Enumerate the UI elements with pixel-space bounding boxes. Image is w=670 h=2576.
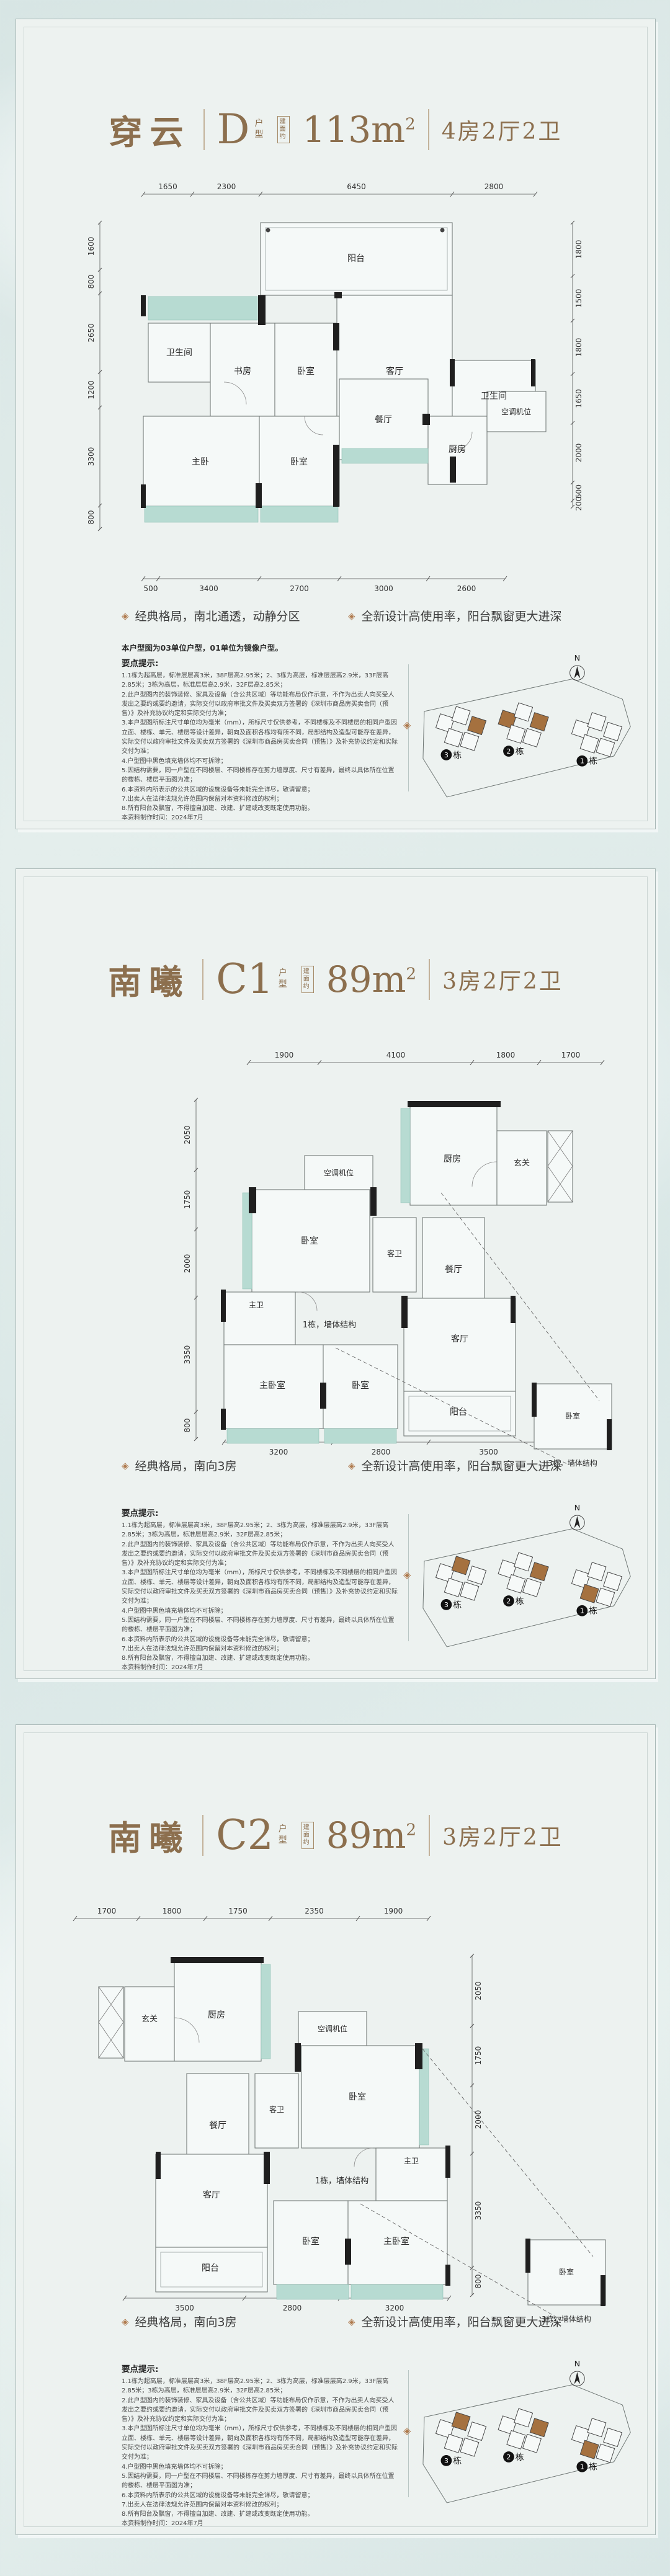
wall	[607, 1419, 612, 1450]
rooms-spec: 3房2厅2卫	[442, 963, 563, 996]
disclaimer-line: 7.出卖人在法律法规允许范围内保留对本资料修改的权利；	[122, 795, 400, 804]
disclaimer-line: 1.1栋为超高层，标准层层高3米，38F层高2.95米；2、3栋为高层，标准层层…	[122, 2377, 400, 2396]
unit-title: 穿云 D 户型 建面约 113m2 4房2厅2卫	[16, 105, 655, 154]
wall	[511, 1296, 516, 1323]
wall	[256, 483, 262, 508]
room-label: 卧室	[352, 1380, 369, 1391]
room-label: 卫生间	[166, 348, 192, 358]
building-unit	[523, 1578, 542, 1597]
room-label: 卧室	[297, 366, 315, 377]
feature-bullet: ◈经典格局，南北通透，动静分区	[122, 607, 300, 624]
wall	[422, 414, 430, 425]
compass-needle	[574, 666, 580, 679]
dim-label: 6450	[347, 182, 366, 191]
wall	[258, 295, 266, 325]
dim-label: 3200	[385, 2304, 404, 2312]
dim-label: 3000	[374, 584, 393, 593]
corner-dot	[440, 228, 445, 233]
door-arc	[298, 1292, 317, 1311]
feature-bullet: ◈经典格局，南向3房	[122, 1457, 237, 1474]
dim-label: 800	[87, 275, 96, 289]
dim-label: 800	[474, 2275, 483, 2289]
bay-window	[227, 1428, 319, 1443]
room-label: 客厅	[203, 2190, 220, 2200]
disclaimer-line: 5.因结构需要，同一户型在不同楼层、不同楼栋存在剪力墙厚度、尺寸有差异，最终以具…	[122, 2472, 400, 2491]
dim-label: 800	[87, 510, 96, 525]
wall	[450, 457, 456, 483]
tips-heading: 要点提示:	[122, 656, 158, 669]
feature-bullet: ◈经典格局，南向3房	[122, 2313, 237, 2330]
building-unit-highlighted	[530, 713, 548, 731]
room-label: 餐厅	[375, 415, 392, 425]
compass-needle	[574, 1516, 580, 1528]
floorplan-panel-nanxi-c1: 南曦 C1 户型 建面约 89m2 3房2厅2卫 190041001800170…	[16, 868, 656, 1679]
room-outline	[156, 2154, 267, 2247]
diamond-icon: ◈	[403, 719, 411, 731]
room-outline	[224, 1292, 295, 1345]
dim-label: 1700	[97, 1907, 117, 1915]
room-label: 玄关	[141, 2015, 158, 2024]
diamond-icon: ◈	[122, 1460, 129, 1471]
dim-label: 3500	[175, 2304, 194, 2312]
feature-text: 全新设计高使用率，阳台飘窗更大进深	[362, 607, 562, 624]
room-label: 1栋，墙体结构	[303, 1320, 356, 1330]
unit-type-code: C2	[216, 1815, 274, 1856]
wall	[333, 323, 339, 350]
disclaimer-line: 8.所有阳台及飘窗，不得擅自加建、改建、扩建或改变既定使用功能。	[122, 1654, 400, 1663]
disclaimer-line: 3.本户型图所标注尺寸单位均为毫米（mm），所标尺寸仅供参考，不同楼栋及不同楼层…	[122, 2424, 400, 2462]
title-divider	[202, 1815, 203, 1856]
feature-bullet: ◈全新设计高使用率，阳台飘窗更大进深	[348, 607, 562, 624]
room-label: 主卧室	[383, 2236, 409, 2247]
diamond-icon: ◈	[348, 1460, 355, 1471]
building-unit-highlighted	[452, 2412, 470, 2431]
bay-window	[261, 506, 338, 522]
dim-label: 1650	[574, 389, 583, 408]
unit-type: C1 户型	[216, 959, 289, 1000]
building-unit	[596, 1588, 615, 1607]
title-divider	[429, 1815, 430, 1856]
wall	[264, 2152, 270, 2184]
feature-bullet: ◈全新设计高使用率，阳台飘窗更大进深	[348, 2313, 562, 2330]
area-value: 113m2	[302, 112, 415, 148]
wall	[525, 2239, 530, 2273]
room-label: 主卫	[404, 2157, 419, 2165]
dim-label: 600	[574, 484, 583, 499]
dim-label: 2000	[574, 443, 583, 463]
disclaimer-block: 1.1栋为超高层，标准层层高3米，38F层高2.95米；2、3栋为高层，标准层层…	[122, 671, 400, 823]
building-number: 2	[507, 2453, 511, 2461]
area-badge: 建面约	[301, 966, 314, 993]
dim-label: 1500	[574, 289, 583, 308]
wall	[415, 2043, 422, 2069]
wall	[333, 445, 339, 507]
wall	[450, 359, 455, 386]
building-unit	[596, 2444, 615, 2462]
floorplan-panel-chuanyun-d: 穿云 D 户型 建面约 113m2 4房2厅2卫 165023006450280…	[16, 19, 656, 829]
dim-label: 1800	[574, 338, 583, 357]
dim-label: 1750	[474, 2046, 483, 2066]
dim-label: 2650	[87, 323, 96, 342]
room-label: 主卧	[192, 457, 209, 467]
project-name: 南曦	[108, 955, 190, 1004]
site-plan: 3栋2栋1栋N	[419, 2356, 640, 2515]
disclaimer-line: 4.户型图中黑色填充墙体均不可拆除；	[122, 1607, 400, 1616]
diamond-icon: ◈	[348, 2316, 355, 2327]
dim-label: 3350	[183, 1345, 192, 1365]
building-unit	[587, 1562, 606, 1581]
area-badge: 建面约	[277, 116, 290, 143]
diamond-icon: ◈	[122, 610, 129, 622]
building-unit	[468, 2422, 486, 2441]
disclaimer-line: 3.本户型图所标注尺寸单位均为毫米（mm），所标尺寸仅供参考，不同楼栋及不同楼层…	[122, 1568, 400, 1606]
building-unit	[514, 703, 533, 721]
title-divider	[429, 959, 430, 1000]
building-unit	[523, 2434, 542, 2453]
wall	[295, 2043, 301, 2072]
building-unit	[604, 2428, 622, 2447]
room-label: 卧室	[349, 2092, 366, 2102]
wall	[320, 1383, 326, 1409]
room-label: 阳台	[450, 1407, 467, 1417]
disclaimer-line: 4.户型图中黑色填充墙体均不可拆除；	[122, 757, 400, 766]
wall	[221, 1409, 226, 1430]
building-unit	[604, 723, 622, 741]
building-label: 栋	[516, 1596, 524, 1607]
disclaimer-block: 1.1栋为超高层，标准层层高3米，38F层高2.95米；2、3栋为高层，标准层层…	[122, 2377, 400, 2529]
dim-label: 2000	[183, 1254, 192, 1273]
disclaimer-line: 5.因结构需要，同一户型在不同楼层、不同楼栋存在剪力墙厚度、尺寸有差异，最终以具…	[122, 766, 400, 785]
building-number: 1	[580, 1607, 584, 1615]
building-label: 栋	[516, 2452, 524, 2462]
rooms-spec: 4房2厅2卫	[442, 114, 563, 146]
made-date: 本资料制作时间：2024年7月	[122, 1663, 400, 1672]
building-label: 栋	[516, 746, 524, 757]
wall	[531, 359, 535, 386]
bay-window	[148, 296, 257, 320]
wall	[141, 484, 146, 508]
room-label: 客厅	[386, 366, 403, 377]
dim-label: 1800	[574, 240, 583, 259]
disclaimer-line: 1.1栋为超高层，标准层层高3米，38F层高2.95米；2、3栋为高层，标准层层…	[122, 1521, 400, 1540]
room-label: 客卫	[269, 2105, 284, 2114]
room-outline	[404, 1298, 516, 1391]
room-label: 书房	[234, 367, 251, 377]
diamond-icon: ◈	[348, 610, 355, 622]
made-date: 本资料制作时间：2024年7月	[122, 2519, 400, 2528]
room-label: 卧室	[559, 2267, 574, 2276]
area-number: 113m	[302, 109, 405, 151]
feature-text: 全新设计高使用率，阳台飘窗更大进深	[362, 2313, 562, 2330]
bay-window	[261, 1964, 270, 2059]
dim-label: 1750	[228, 1907, 248, 1915]
room-label: 卧室	[302, 2236, 319, 2247]
dim-label: 1700	[561, 1051, 581, 1059]
area-superscript: 2	[406, 1821, 417, 1839]
building-unit-highlighted	[530, 2418, 548, 2437]
wall	[334, 292, 342, 298]
building-number: 2	[507, 1597, 511, 1605]
project-name: 穿云	[109, 105, 191, 154]
disclaimer-line: 6.本资料内所表示的公共区域的设施设备等未能完全详尽，敬请留意；	[122, 2491, 400, 2500]
dim-label: 4100	[386, 1051, 406, 1059]
dim-label: 1800	[496, 1051, 516, 1059]
building-label: 栋	[589, 756, 597, 767]
floor-plan-svg: 1650230064502800500340027003000260016008…	[38, 174, 633, 608]
rooms-spec: 3房2厅2卫	[442, 1819, 563, 1852]
wall	[445, 2265, 450, 2286]
dim-label: 500	[144, 584, 158, 593]
mirror-note: 本户型图为03单位户型，01单位为镜像户型。	[122, 641, 283, 653]
north-label: N	[574, 654, 581, 663]
dim-label: 1600	[87, 237, 96, 256]
building-label: 栋	[453, 2456, 462, 2466]
wall	[532, 1383, 537, 1417]
tips-heading: 要点提示:	[122, 2362, 158, 2374]
room-label: 空调机位	[501, 407, 531, 416]
wall	[408, 1101, 501, 1107]
made-date: 本资料制作时间：2024年7月	[122, 813, 400, 822]
disclaimer-line: 6.本资料内所表示的公共区域的设施设备等未能完全详尽，敬请留意；	[122, 1635, 400, 1644]
feature-bullet: ◈全新设计高使用率，阳台飘窗更大进深	[348, 1457, 562, 1474]
unit-title: 南曦 C2 户型 建面约 89m2 3房2厅2卫	[16, 1811, 655, 1860]
unit-type-suffix: 户型	[279, 968, 289, 990]
room-outline	[99, 1987, 123, 2058]
dim-label: 1900	[275, 1051, 294, 1059]
room-outline	[548, 1131, 573, 1202]
unit-title: 南曦 C1 户型 建面约 89m2 3房2厅2卫	[16, 955, 655, 1004]
corner-dot	[266, 228, 270, 233]
wall	[401, 1296, 408, 1328]
site-plan: 3栋2栋1栋N	[419, 651, 640, 809]
building-unit-highlighted	[530, 1562, 548, 1581]
room-outline	[497, 1131, 547, 1205]
site-plan: 3栋2栋1栋N	[419, 1500, 640, 1659]
area-superscript: 2	[406, 965, 417, 983]
room-label: 卧室	[301, 1236, 318, 1246]
diamond-icon: ◈	[122, 2316, 129, 2327]
building-unit	[460, 732, 479, 751]
wall	[249, 1187, 256, 1213]
bay-window	[351, 2284, 443, 2299]
room-label: 空调机位	[318, 2024, 347, 2033]
room-label: 卧室	[565, 1411, 580, 1420]
dim-label: 3200	[269, 1448, 288, 1456]
dim-label: 2350	[305, 1907, 324, 1915]
dim-label: 1900	[384, 1907, 403, 1915]
disclaimer-line: 6.本资料内所表示的公共区域的设施设备等未能完全详尽，敬请留意；	[122, 785, 400, 795]
building-number: 3	[444, 751, 449, 759]
building-number: 1	[580, 757, 584, 765]
disclaimer-line: 3.本户型图所标注尺寸单位均为毫米（mm），所标尺寸仅供参考，不同楼栋及不同楼层…	[122, 718, 400, 756]
unit-type-suffix: 户型	[254, 118, 265, 140]
wall	[141, 295, 146, 316]
room-label: 玄关	[514, 1159, 530, 1168]
diamond-icon: ◈	[403, 2425, 411, 2436]
building-number: 3	[444, 1601, 449, 1609]
building-unit-highlighted	[452, 1556, 470, 1575]
unit-type-suffix: 户型	[279, 1824, 289, 1846]
disclaimer-line: 2.此户型图内的装饰装修、家具及设备（含公共区域）等功能布局仅作示意，不作为出卖…	[122, 1540, 400, 1569]
area-badge: 建面约	[301, 1822, 314, 1849]
building-number: 3	[444, 2457, 449, 2465]
building-number: 2	[507, 747, 511, 755]
building-unit-highlighted	[468, 716, 486, 735]
unit-type: C2 户型	[216, 1815, 289, 1856]
room-label: 主卫	[249, 1301, 264, 1309]
dim-label: 3350	[474, 2201, 483, 2221]
wall	[445, 2146, 450, 2178]
building-unit	[604, 1572, 622, 1591]
wall	[370, 1187, 377, 1216]
area-number: 89m	[326, 1814, 406, 1856]
dim-label: 2800	[372, 1448, 391, 1456]
bay-window	[277, 2284, 349, 2299]
dim-label: 2800	[485, 182, 504, 191]
area-value: 89m2	[326, 1817, 416, 1853]
building-unit	[523, 728, 542, 747]
floor-plan-svg: 1700180017502350190035002800320020501750…	[38, 1894, 633, 2328]
room-label: 厨房	[208, 2010, 225, 2020]
dim-label: 2800	[283, 2304, 302, 2312]
room-label: 1栋，墙体结构	[315, 2176, 368, 2186]
title-divider	[203, 109, 205, 150]
room-outline	[125, 1987, 174, 2061]
door-arc	[354, 2148, 373, 2167]
floorplan-panel-nanxi-c2: 南曦 C2 户型 建面约 89m2 3房2厅2卫 170018001750235…	[16, 1724, 656, 2535]
area-number: 89m	[326, 958, 406, 1001]
north-label: N	[574, 2360, 581, 2369]
room-label: 客厅	[451, 1334, 468, 1344]
building-unit	[587, 2418, 606, 2437]
disclaimer-line: 4.户型图中黑色填充墙体均不可拆除；	[122, 2462, 400, 2472]
dim-label: 1200	[87, 380, 96, 399]
unit-type-code: C1	[216, 959, 274, 1000]
room-label: 阳台	[202, 2263, 219, 2273]
room-label: 主卧室	[259, 1380, 285, 1391]
wall	[156, 2152, 161, 2179]
title-divider	[428, 109, 429, 150]
room-label: 卧室	[290, 457, 308, 467]
dim-label: 3300	[87, 447, 96, 466]
building-label: 栋	[453, 1600, 462, 1610]
disclaimer-line: 1.1栋为超高层，标准层层高3米，38F层高2.95米；2、3栋为高层，标准层层…	[122, 671, 400, 690]
room-label: 空调机位	[324, 1168, 354, 1177]
diamond-icon: ◈	[403, 1569, 411, 1580]
building-unit	[468, 1566, 486, 1585]
room-outline	[376, 2148, 447, 2201]
unit-type-code: D	[217, 109, 250, 150]
disclaimer-line: 5.因结构需要，同一户型在不同楼层、不同楼栋存在剪力墙厚度、尺寸有差异，最终以具…	[122, 1616, 400, 1635]
dim-label: 200	[574, 497, 583, 511]
tips-heading: 要点提示:	[122, 1506, 158, 1518]
dim-label: 2050	[474, 1981, 483, 2000]
disclaimer-block: 1.1栋为超高层，标准层层高3米，38F层高2.95米；2、3栋为高层，标准层层…	[122, 1521, 400, 1673]
dim-label: 2300	[217, 182, 236, 191]
building-label: 栋	[589, 2462, 597, 2472]
room-label: 厨房	[444, 1154, 461, 1164]
disclaimer-line: 7.出卖人在法律法规允许范围内保留对本资料修改的权利；	[122, 2500, 400, 2510]
feature-text: 经典格局，南北通透，动静分区	[135, 607, 300, 624]
dim-label: 3500	[479, 1448, 498, 1456]
room-label: 餐厅	[445, 1265, 462, 1275]
building-unit	[596, 738, 615, 757]
wall	[601, 2275, 605, 2306]
building-unit	[514, 2409, 533, 2427]
building-unit	[460, 1582, 479, 1600]
room-label: 餐厅	[209, 2121, 226, 2131]
bay-window	[401, 1108, 410, 1203]
north-label: N	[574, 1504, 581, 1513]
dim-label: 1800	[163, 1907, 182, 1915]
building-unit	[514, 1553, 533, 1571]
floor-plan-svg: 1900410018001700320028003500205017502000…	[38, 1038, 633, 1472]
building-number: 1	[580, 2463, 584, 2471]
wall	[221, 1290, 226, 1322]
disclaimer-line: 8.所有阳台及飘窗，不得擅自加建、改建、扩建或改变既定使用功能。	[122, 804, 400, 813]
bay-window	[342, 448, 428, 463]
feature-text: 经典格局，南向3房	[135, 1457, 237, 1474]
title-divider	[202, 959, 203, 1000]
dim-label: 3400	[199, 584, 218, 593]
room-label: 客卫	[387, 1249, 402, 1258]
building-label: 栋	[589, 1606, 597, 1616]
bay-window	[324, 1428, 396, 1443]
feature-text: 经典格局，南向3房	[135, 2313, 237, 2330]
compass-needle	[574, 2372, 580, 2384]
dim-label: 800	[183, 1419, 192, 1433]
dim-label: 2600	[457, 584, 476, 593]
area-value: 89m2	[326, 961, 416, 997]
dim-label: 2050	[183, 1125, 192, 1144]
disclaimer-line: 8.所有阳台及飘窗，不得擅自加建、改建、扩建或改变既定使用功能。	[122, 2510, 400, 2519]
building-label: 栋	[453, 750, 462, 760]
dim-label: 1650	[158, 182, 177, 191]
building-unit	[452, 706, 470, 725]
disclaimer-line: 2.此户型图内的装饰装修、家具及设备（含公共区域）等功能布局仅作示意，不作为出卖…	[122, 2396, 400, 2425]
area-superscript: 2	[405, 115, 416, 133]
building-unit	[460, 2438, 479, 2456]
wall	[345, 2239, 351, 2265]
feature-text: 全新设计高使用率，阳台飘窗更大进深	[362, 1457, 562, 1474]
disclaimer-line: 2.此户型图内的装饰装修、家具及设备（含公共区域）等功能布局仅作示意，不作为出卖…	[122, 690, 400, 719]
room-label: 厨房	[449, 445, 466, 455]
building-unit	[587, 713, 606, 731]
project-name: 南曦	[108, 1811, 190, 1860]
disclaimer-line: 7.出卖人在法律法规允许范围内保留对本资料修改的权利；	[122, 1644, 400, 1654]
dim-label: 2700	[290, 584, 309, 593]
room-label: 卫生间	[481, 391, 507, 401]
unit-type: D 户型	[217, 109, 266, 150]
room-label: 阳台	[347, 254, 365, 264]
wall	[171, 1957, 264, 1963]
dim-label: 1750	[183, 1190, 192, 1210]
bay-window	[145, 506, 258, 522]
